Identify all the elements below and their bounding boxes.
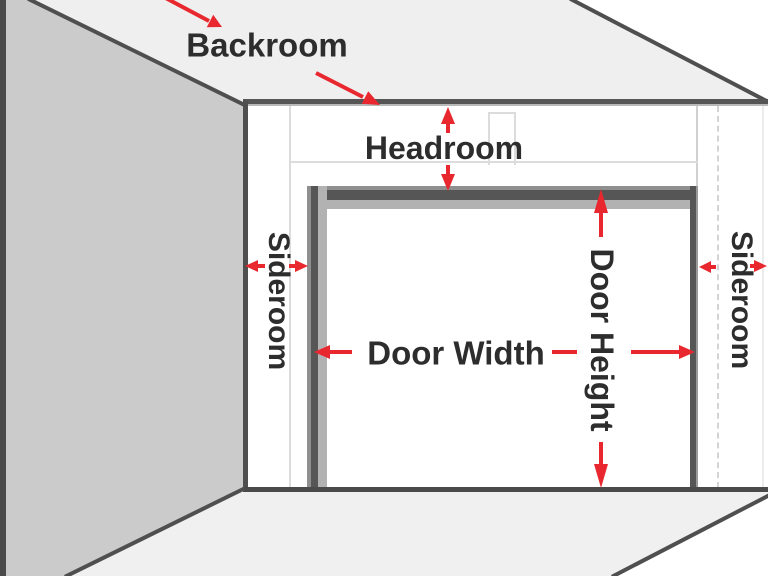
backroom-label: Backroom — [186, 29, 347, 62]
headroom-label: Headroom — [365, 132, 523, 164]
dimension-arrows — [0, 0, 768, 576]
sideroom-right-inner-arrow — [699, 261, 716, 273]
door-width-right-arrow — [631, 345, 695, 359]
door-height-up-arrow — [594, 189, 608, 237]
sideroom-left-label: Sideroom — [263, 232, 293, 370]
backroom-offscreen-arrow — [160, 0, 222, 27]
backroom-arrow — [316, 73, 380, 105]
door-height-down-arrow — [594, 442, 608, 488]
garage-measurement-diagram: Backroom Headroom Sideroom Sideroom Door… — [0, 0, 768, 576]
door-width-left-arrow — [314, 345, 352, 359]
door-width-label: Door Width — [367, 337, 545, 370]
door-height-label: Door Height — [586, 248, 618, 431]
headroom-down-arrow — [441, 165, 455, 191]
sideroom-right-label: Sideroom — [726, 231, 756, 369]
